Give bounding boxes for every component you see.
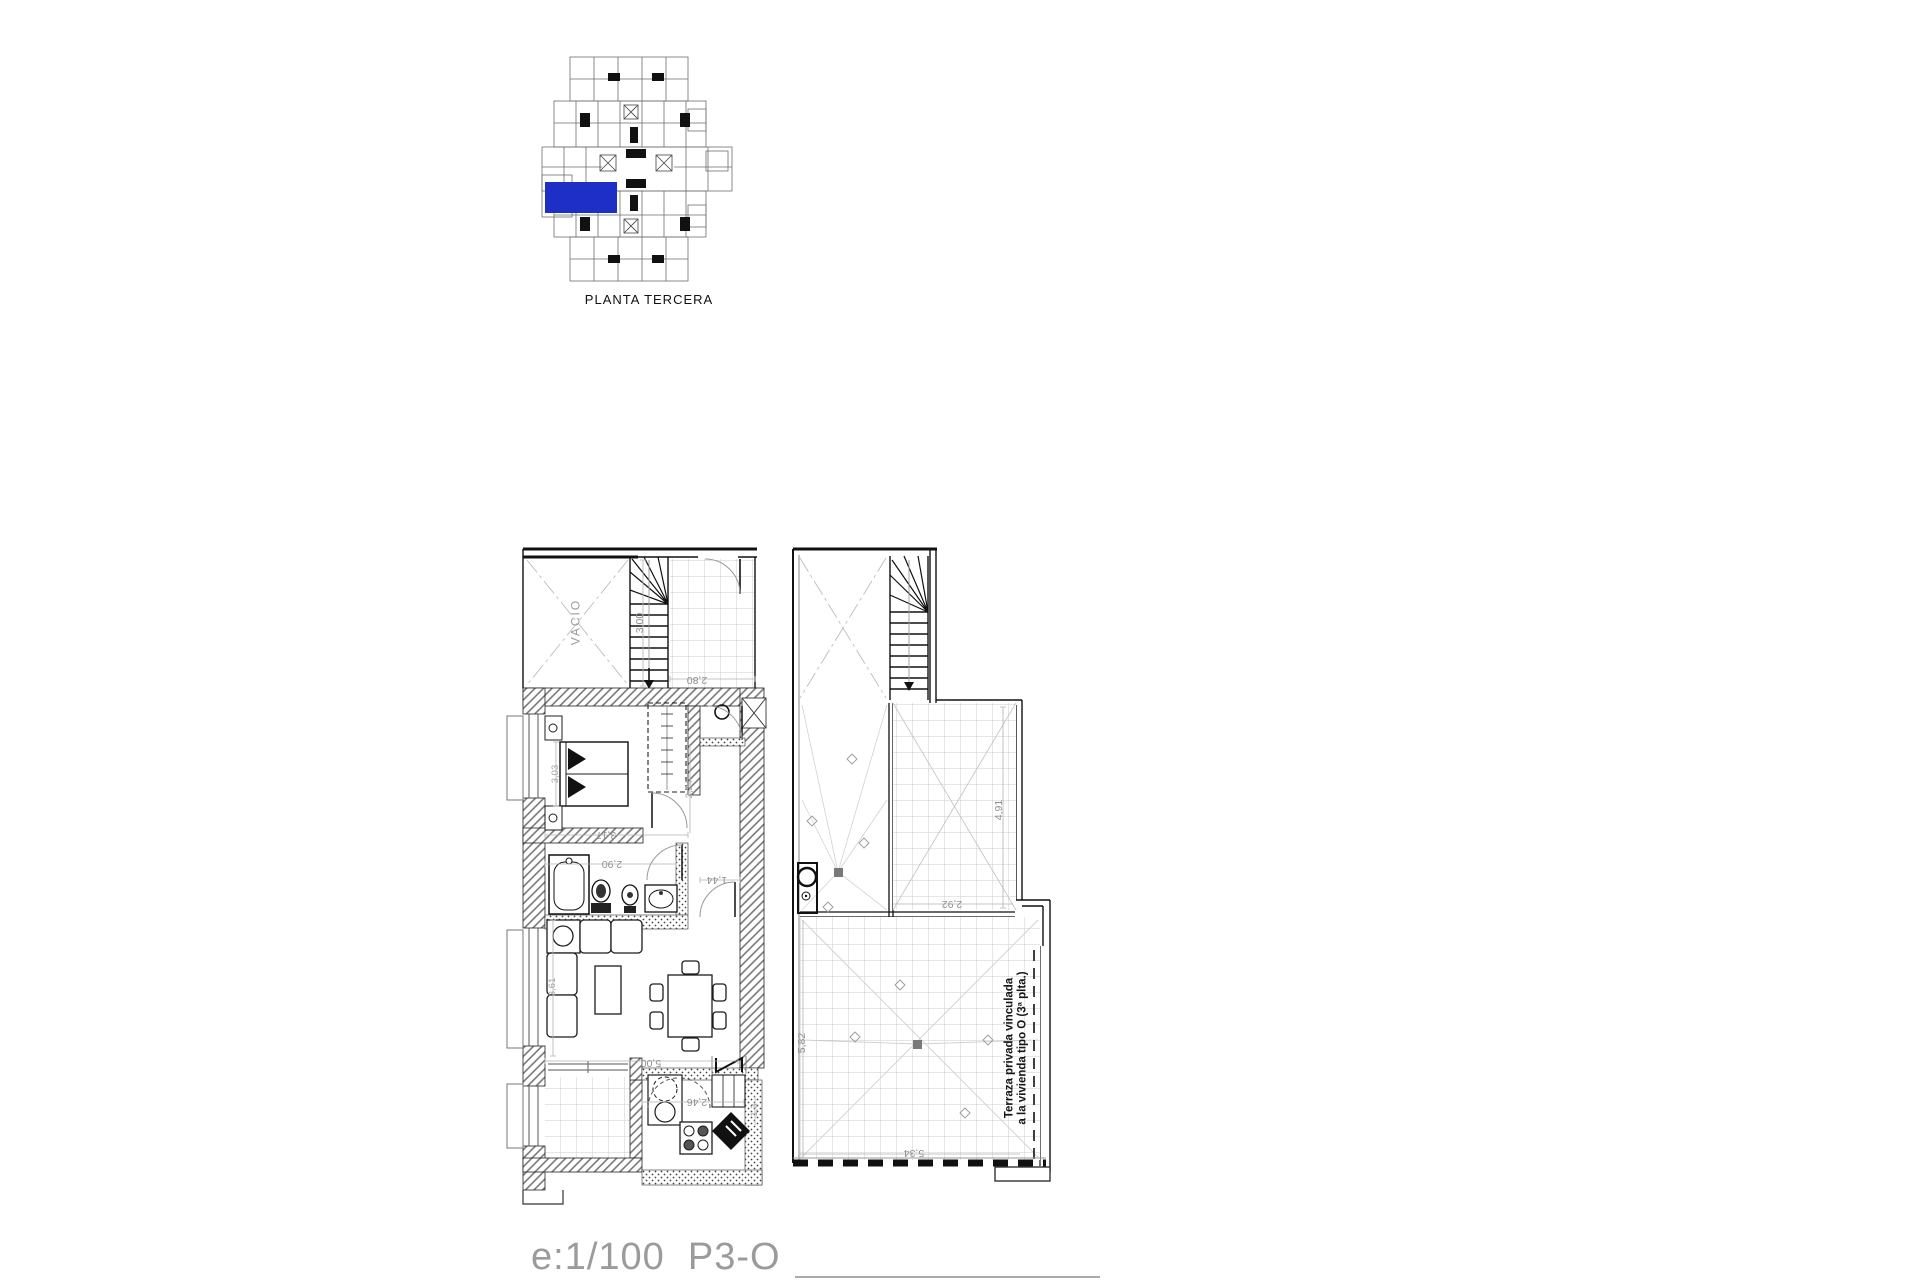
dim-terrace-upper-height: 4,91 — [994, 800, 1006, 820]
dim-hall-width: 1,44 — [707, 873, 727, 885]
bidet — [622, 885, 638, 913]
balcony-floor — [545, 1077, 630, 1158]
kitchen-sink-unit — [648, 1075, 682, 1125]
terrace-note-line2: a la vivienda tipo O (3ª plta.) — [1016, 971, 1029, 1124]
landing-floor — [670, 559, 755, 688]
dim-bedroom-length: 3,17 — [596, 828, 616, 840]
toilet — [591, 880, 611, 913]
bottom-tab — [995, 1167, 1050, 1181]
plan-drawing — [0, 0, 1920, 1280]
terrace-note: Terraza privada vinculada a la vivienda … — [1003, 971, 1028, 1124]
wardrobe — [648, 703, 686, 792]
floor-plan-page: VACIO 3,00 2,80 3,03 3,17 2,90 1,44 2,24… — [0, 0, 1920, 1280]
bed — [560, 742, 628, 806]
key-plan-highlight — [545, 182, 617, 213]
void-label: VACIO — [569, 599, 582, 645]
washbasin — [645, 885, 677, 912]
dim-terrace-lower-width: 5,34 — [904, 1146, 924, 1158]
living-door — [700, 882, 735, 917]
bedroom-door — [652, 793, 687, 828]
stairs-right — [890, 556, 928, 700]
dim-kitchen-width: 2,46 — [687, 1095, 707, 1107]
dim-living-width: 5,00 — [641, 1056, 661, 1068]
key-plan-caption: PLANTA TERCERA — [585, 293, 713, 307]
fridge — [712, 1112, 750, 1150]
heater-room — [708, 705, 742, 740]
terrace-note-line1: Terraza privada vinculada — [1003, 971, 1016, 1124]
balcony-slider — [548, 1061, 628, 1073]
key-plan — [542, 57, 732, 281]
scale-label: e:1/100 P3-O — [531, 1236, 781, 1279]
bottom-step — [523, 1190, 563, 1204]
dining-table — [650, 961, 726, 1051]
vent-shaft — [742, 698, 766, 728]
dim-landing: 2,80 — [687, 673, 707, 685]
stove — [680, 1122, 712, 1154]
planter-fixture — [798, 863, 817, 913]
dim-kitchen-depth: 1,3 — [750, 1103, 760, 1116]
lower-terrace-drain — [913, 1040, 922, 1049]
dim-bath-width: 2,90 — [602, 857, 622, 869]
dim-stair: 3,00 — [635, 613, 647, 633]
upper-void — [800, 558, 886, 698]
drain-room — [798, 705, 887, 913]
dim-terrace-upper-width: 2,92 — [942, 897, 962, 909]
coffee-table — [595, 966, 621, 1014]
dim-living-depth: 3,61 — [548, 978, 558, 997]
side-table — [547, 920, 580, 953]
dim-terrace-lower-height: 5,82 — [797, 1033, 809, 1053]
dim-hall-depth: 2,24 — [685, 780, 695, 799]
dim-bedroom-width: 3,03 — [551, 765, 561, 784]
